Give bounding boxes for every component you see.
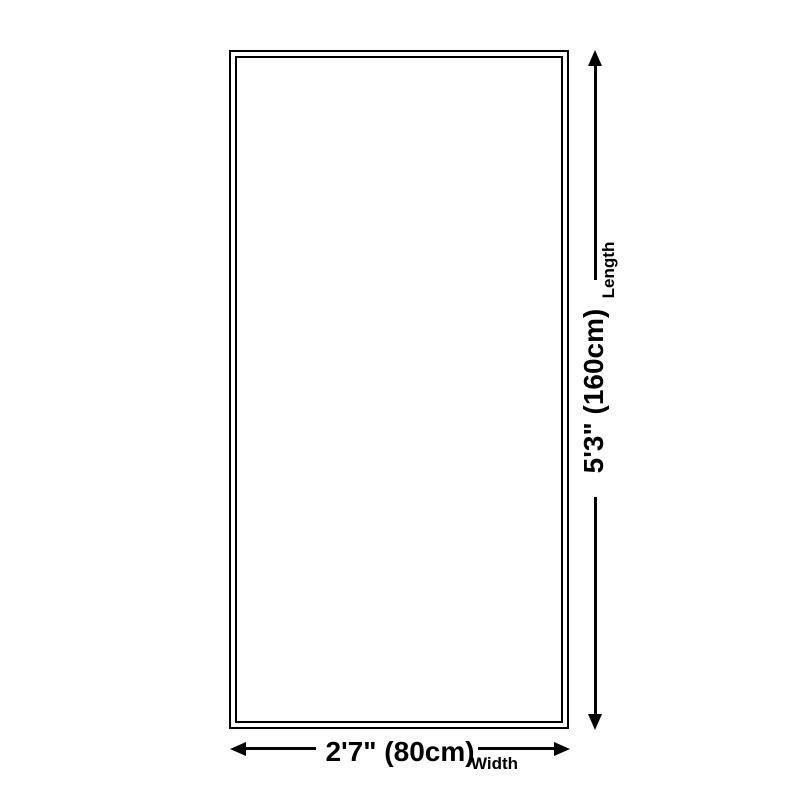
arrow-down-icon [588, 714, 602, 730]
width-measurement: 2'7" (80cm) [300, 737, 500, 767]
dimension-diagram: Length 5'3" (160cm) 2'7" (80cm) Width [0, 0, 800, 800]
arrow-right-icon [554, 742, 570, 756]
arrow-left-icon [230, 742, 246, 756]
width-dimension-line-right [478, 747, 555, 750]
product-outline-inner [235, 56, 563, 723]
length-measurement: 5'3" (160cm) [579, 241, 609, 541]
product-outline [229, 50, 569, 729]
length-dimension-line-lower [594, 497, 597, 716]
width-axis-label: Width [471, 754, 518, 774]
